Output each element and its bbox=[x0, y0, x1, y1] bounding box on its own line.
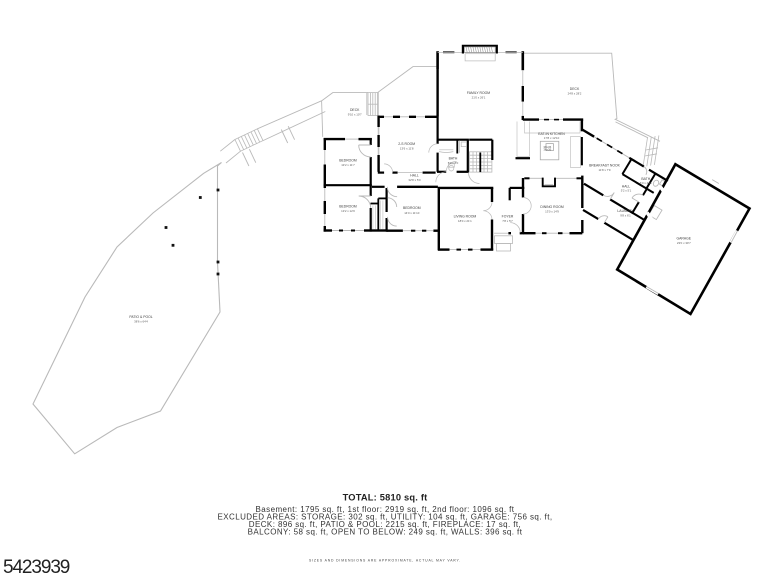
svg-text:21'0 x 26'1: 21'0 x 26'1 bbox=[472, 95, 486, 99]
svg-text:DINING ROOM: DINING ROOM bbox=[540, 205, 564, 209]
svg-text:7'8 x 5'7: 7'8 x 5'7 bbox=[502, 219, 513, 223]
svg-text:HALL: HALL bbox=[410, 173, 419, 177]
svg-text:5'2 x 5'1: 5'2 x 5'1 bbox=[621, 188, 632, 192]
svg-text:BEDROOM: BEDROOM bbox=[403, 206, 421, 210]
svg-text:36x36: 36x36 bbox=[543, 148, 551, 152]
svg-text:LAUNDRY: LAUNDRY bbox=[617, 209, 634, 213]
svg-text:6'0 x 4'11: 6'0 x 4'11 bbox=[640, 181, 652, 185]
svg-text:38'6 x 64'4: 38'6 x 64'4 bbox=[134, 319, 148, 323]
svg-text:BATH: BATH bbox=[449, 157, 458, 161]
svg-text:13'0 x 14'9: 13'0 x 14'9 bbox=[545, 210, 559, 214]
svg-text:BREAKFAST NOOK: BREAKFAST NOOK bbox=[589, 163, 621, 167]
svg-text:LIVING ROOM: LIVING ROOM bbox=[454, 215, 477, 219]
svg-text:BEDROOM: BEDROOM bbox=[339, 204, 357, 208]
svg-text:32'8 x 5'0: 32'8 x 5'0 bbox=[408, 178, 421, 182]
svg-text:17'8 x 12'10: 17'8 x 12'10 bbox=[544, 136, 560, 140]
svg-text:FOYER: FOYER bbox=[502, 214, 514, 218]
svg-text:BEDROOM: BEDROOM bbox=[339, 159, 357, 163]
svg-text:FAMILY ROOM: FAMILY ROOM bbox=[467, 91, 490, 95]
svg-text:5'0 x 8'0: 5'0 x 8'0 bbox=[448, 161, 459, 165]
svg-text:11'8 x 7'9: 11'8 x 7'9 bbox=[599, 168, 611, 172]
svg-text:TOTAL: 5810 sq. ft: TOTAL: 5810 sq. ft bbox=[343, 493, 428, 503]
svg-text:24'8 x 28'2: 24'8 x 28'2 bbox=[568, 91, 582, 95]
svg-text:SIZES AND DIMENSIONS ARE APPRO: SIZES AND DIMENSIONS ARE APPROXIMATE, AC… bbox=[309, 559, 461, 563]
svg-text:5423939: 5423939 bbox=[3, 557, 70, 576]
svg-text:PATIO & POOL: PATIO & POOL bbox=[129, 315, 152, 319]
svg-text:GARAGE: GARAGE bbox=[677, 236, 692, 240]
svg-text:13'2 x 11'7: 13'2 x 11'7 bbox=[341, 163, 355, 167]
svg-text:23'0 x 30'7: 23'0 x 30'7 bbox=[677, 241, 691, 245]
svg-text:9'8 x 6'1: 9'8 x 6'1 bbox=[620, 213, 631, 217]
svg-text:BALCONY: 58 sq. ft, OPEN TO BE: BALCONY: 58 sq. ft, OPEN TO BELOW: 249 s… bbox=[248, 528, 523, 537]
svg-text:13'6 x 11'8: 13'6 x 11'8 bbox=[400, 147, 414, 151]
svg-text:18'0 x 21'1: 18'0 x 21'1 bbox=[458, 219, 472, 223]
svg-text:DECK: DECK bbox=[350, 108, 360, 112]
svg-text:13'2 x 12'0: 13'2 x 12'0 bbox=[341, 209, 355, 213]
svg-text:14'0 x 11'10: 14'0 x 11'10 bbox=[404, 211, 420, 215]
svg-text:9'10 x 10'7: 9'10 x 10'7 bbox=[348, 113, 362, 117]
svg-text:2-S ROOM: 2-S ROOM bbox=[398, 142, 415, 146]
svg-text:DECK: DECK bbox=[570, 87, 580, 91]
